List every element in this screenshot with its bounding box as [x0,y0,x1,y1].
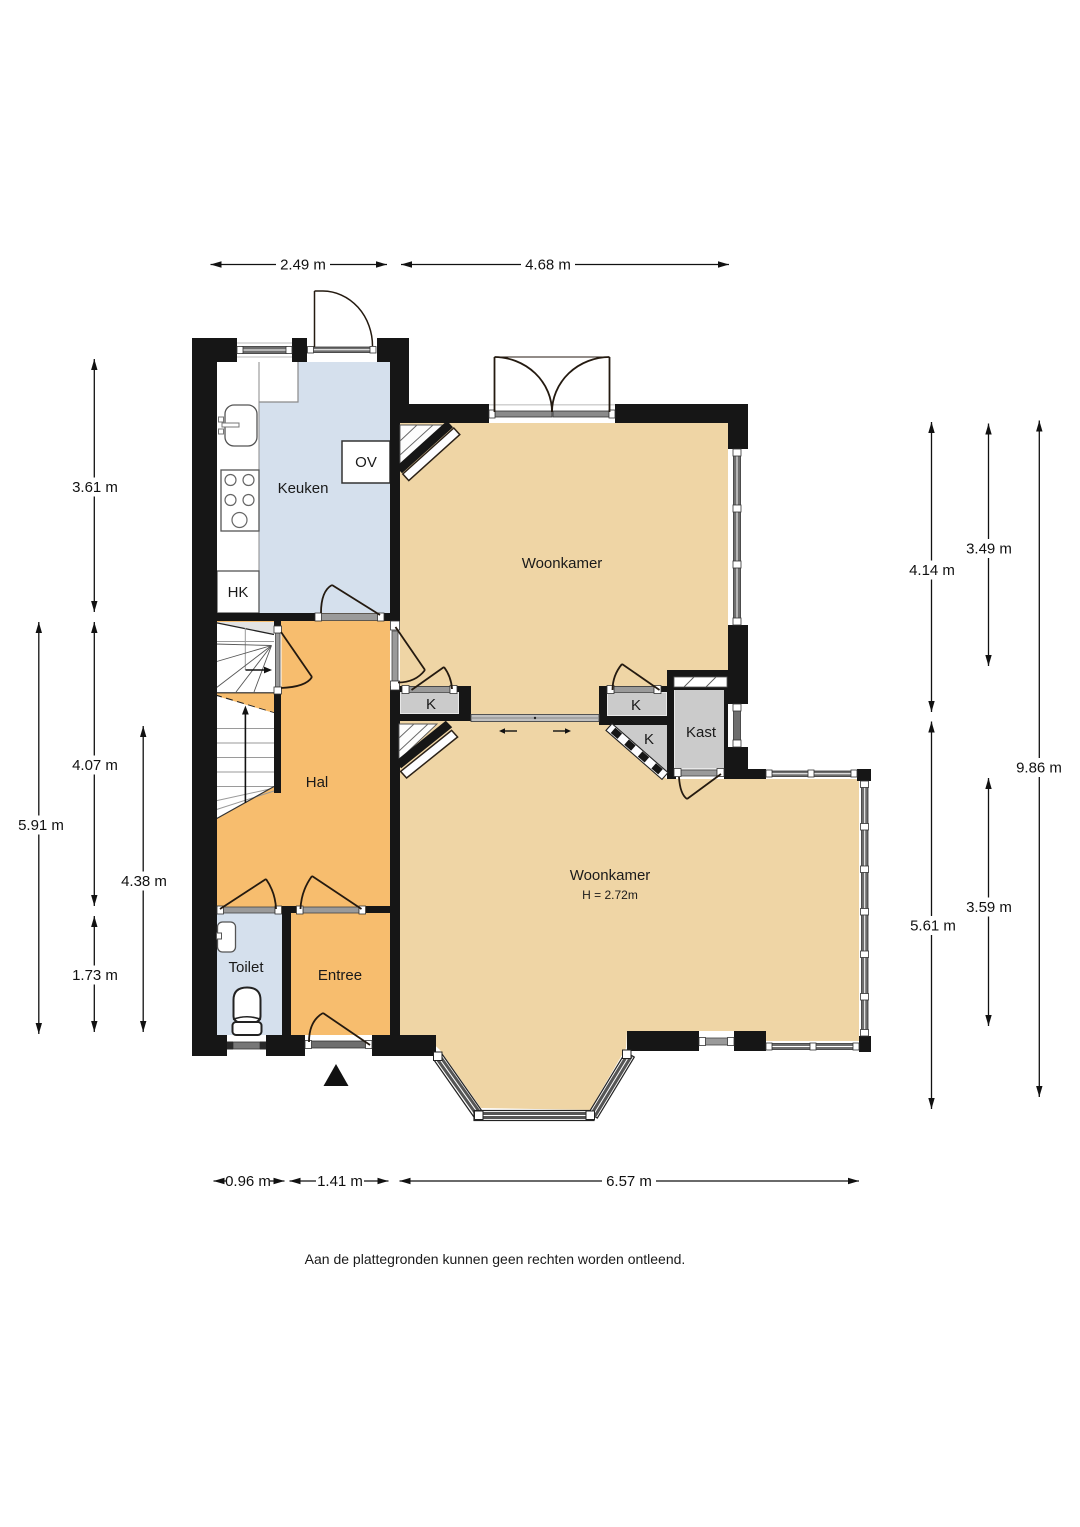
svg-text:2.49 m: 2.49 m [280,257,326,274]
svg-text:Toilet: Toilet [228,959,264,976]
svg-text:HK: HK [228,584,249,601]
svg-text:4.14 m: 4.14 m [909,562,955,579]
svg-text:9.86 m: 9.86 m [1016,760,1062,777]
svg-text:K: K [426,696,436,713]
svg-text:H = 2.72m: H = 2.72m [582,888,638,902]
svg-text:5.61 m: 5.61 m [910,918,956,935]
svg-text:1.73 m: 1.73 m [72,967,118,984]
svg-text:K: K [644,731,654,748]
svg-text:Hal: Hal [306,774,329,791]
svg-text:3.59 m: 3.59 m [966,899,1012,916]
svg-text:4.68 m: 4.68 m [525,257,571,274]
svg-text:3.49 m: 3.49 m [966,541,1012,558]
svg-text:K: K [631,697,641,714]
svg-text:4.38 m: 4.38 m [121,873,167,890]
svg-text:Keuken: Keuken [278,480,329,497]
svg-text:0.96 m: 0.96 m [225,1173,271,1190]
svg-text:5.91 m: 5.91 m [18,817,64,834]
svg-text:Entree: Entree [318,967,362,984]
svg-text:OV: OV [355,454,377,471]
svg-text:3.61 m: 3.61 m [72,479,118,496]
svg-text:Woonkamer: Woonkamer [570,867,651,884]
svg-text:6.57 m: 6.57 m [606,1173,652,1190]
svg-text:Woonkamer: Woonkamer [522,555,603,572]
svg-text:Kast: Kast [686,724,717,741]
svg-text:4.07 m: 4.07 m [72,757,118,774]
svg-text:Aan de plattegronden kunnen ge: Aan de plattegronden kunnen geen rechten… [305,1251,686,1267]
svg-text:1.41 m: 1.41 m [317,1173,363,1190]
